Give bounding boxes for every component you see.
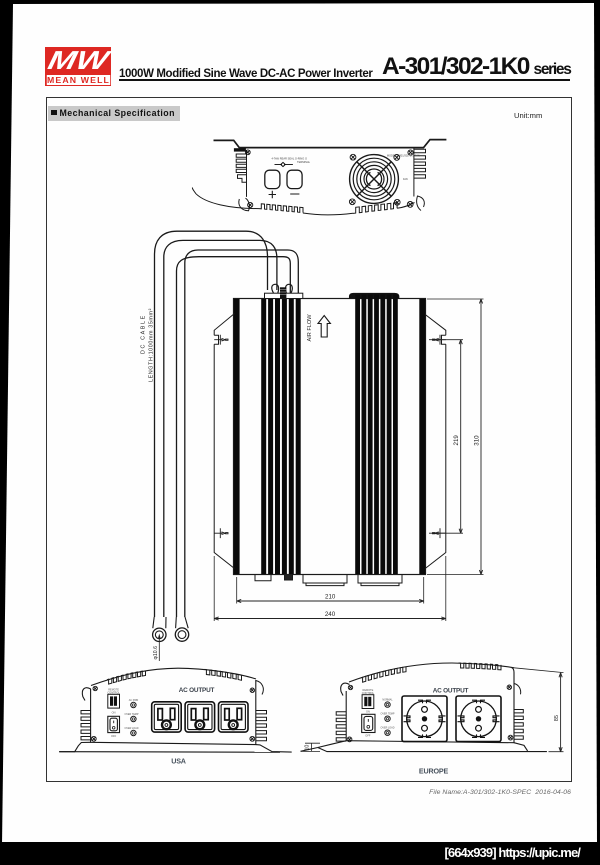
svg-text:ON: ON <box>366 709 370 713</box>
svg-text:85: 85 <box>554 715 560 721</box>
svg-text:ON: ON <box>112 710 116 714</box>
svg-text:EUROPE: EUROPE <box>419 766 449 775</box>
svg-text:FAN: FAN <box>403 178 408 181</box>
svg-text:219: 219 <box>453 435 460 446</box>
svg-text:240: 240 <box>325 611 336 618</box>
svg-text:AC PWR: AC PWR <box>129 699 139 702</box>
svg-text:OVER LOAD: OVER LOAD <box>381 726 395 729</box>
svg-text:AIR FLOW: AIR FLOW <box>307 314 313 342</box>
svg-text:210: 210 <box>325 594 336 601</box>
svg-text:OVER LOAD: OVER LOAD <box>125 727 139 730</box>
svg-text:MODEL:A-301/302-1K0 FAN: MODEL:A-301/302-1K0 FAN <box>387 153 420 157</box>
svg-text:OVER TEMP: OVER TEMP <box>124 713 138 716</box>
svg-text:OVER TEMP: OVER TEMP <box>380 712 394 715</box>
svg-text:AC OUTPUT: AC OUTPUT <box>433 688 469 695</box>
svg-text:DC CABLE: DC CABLE <box>141 314 147 354</box>
svg-text:10: 10 <box>305 745 311 751</box>
svg-text:OFF: OFF <box>365 734 371 738</box>
svg-text:TERMINAL: TERMINAL <box>297 160 311 164</box>
svg-text:NORMAL: NORMAL <box>382 698 393 701</box>
svg-text:USA: USA <box>171 757 186 766</box>
svg-text:AC OUTPUT: AC OUTPUT <box>179 687 215 694</box>
svg-text:OFF: OFF <box>111 734 117 738</box>
svg-text:φ10.6: φ10.6 <box>153 646 159 660</box>
svg-text:310: 310 <box>473 435 480 446</box>
svg-text:LENGTH:1000mm 35mm²: LENGTH:1000mm 35mm² <box>149 308 155 382</box>
